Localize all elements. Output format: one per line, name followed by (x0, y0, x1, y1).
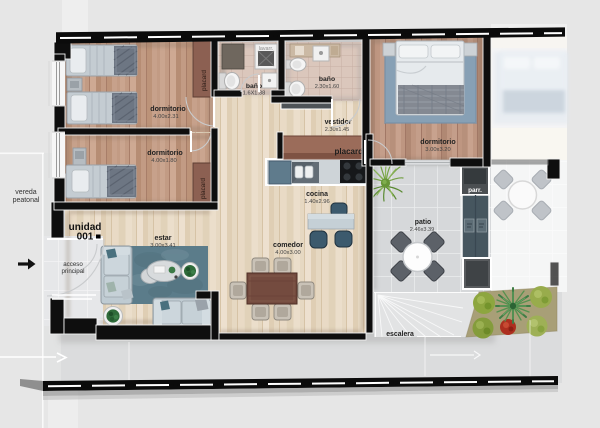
svg-text:baño: baño (319, 76, 335, 83)
svg-text:comedor: comedor (273, 241, 303, 249)
svg-text:1.40x2.96: 1.40x2.96 (304, 199, 329, 205)
svg-text:placard: placard (201, 70, 208, 91)
svg-text:principal: principal (61, 268, 84, 275)
svg-text:3.00x3.20: 3.00x3.20 (425, 147, 450, 153)
svg-text:4.00x2.31: 4.00x2.31 (153, 114, 178, 120)
svg-text:2.30x1.45: 2.30x1.45 (325, 127, 350, 133)
svg-text:1.6X1.38: 1.6X1.38 (243, 91, 265, 97)
svg-text:lavarr.: lavarr. (259, 46, 274, 52)
svg-text:4.00x3.00: 4.00x3.00 (275, 250, 300, 256)
svg-text:4.00x1.80: 4.00x1.80 (151, 158, 176, 164)
svg-text:dormitorio: dormitorio (147, 149, 183, 157)
svg-text:001: 001 (77, 232, 94, 243)
svg-text:2.46x3.39: 2.46x3.39 (410, 227, 435, 233)
svg-text:peatonal: peatonal (13, 197, 40, 204)
svg-text:3.00x3.41: 3.00x3.41 (150, 243, 175, 249)
svg-text:cocina: cocina (306, 191, 328, 198)
svg-text:placard: placard (200, 178, 207, 199)
svg-text:vereda: vereda (15, 189, 37, 196)
svg-text:parr.: parr. (468, 187, 482, 194)
svg-text:placard: placard (335, 147, 364, 156)
svg-text:estar: estar (155, 234, 172, 242)
svg-text:dormitorio: dormitorio (150, 105, 186, 113)
svg-text:dormitorio: dormitorio (420, 138, 456, 146)
svg-text:patio: patio (415, 219, 431, 226)
svg-text:escalera: escalera (386, 331, 414, 338)
svg-text:acceso: acceso (63, 261, 83, 268)
svg-text:2.30x1.60: 2.30x1.60 (315, 84, 340, 90)
